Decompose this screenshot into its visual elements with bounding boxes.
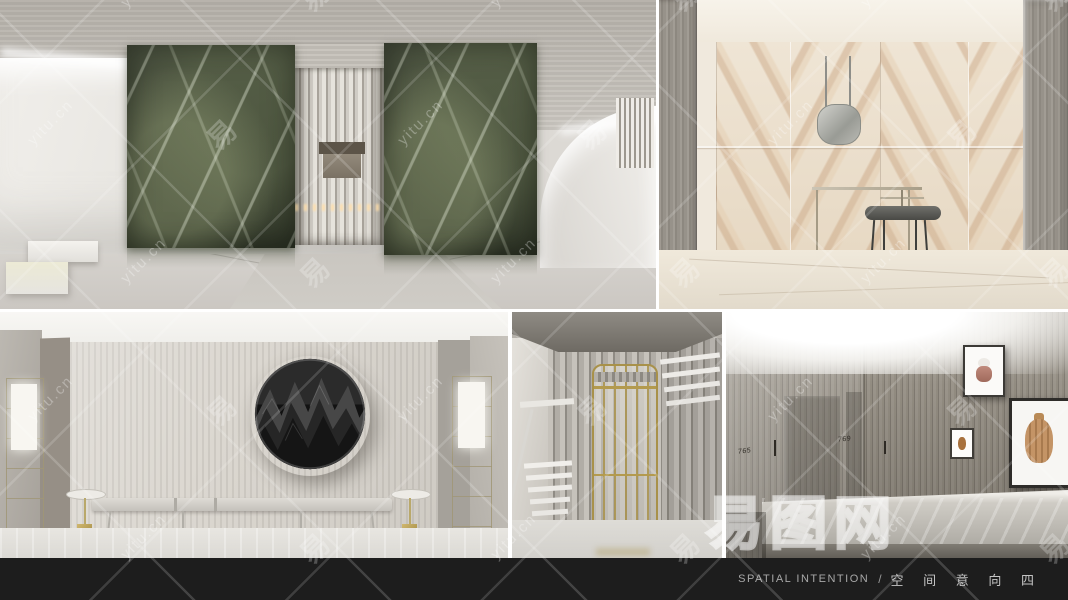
watermark-glyph: 易 — [660, 248, 708, 296]
watermark-glyph: 易 — [197, 386, 245, 434]
watermark-domain-text: yitu.cn — [394, 96, 447, 149]
watermark-glyph: 易 — [1030, 248, 1068, 296]
watermark-domain-text: yitu.cn — [487, 234, 540, 287]
watermark-glyph: 易 — [1030, 0, 1068, 20]
watermark-glyph: 易 — [1030, 524, 1068, 572]
watermark-glyph: 易 — [290, 524, 338, 572]
watermark-domain-text: yitu.cn — [764, 372, 817, 425]
watermark-glyph: 易 — [937, 386, 985, 434]
watermark-glyph: 易 — [567, 386, 615, 434]
watermark-domain-text: yitu.cn — [857, 0, 910, 11]
watermark-glyph: 易 — [567, 110, 615, 158]
watermark-domain-text: yitu.cn — [117, 234, 170, 287]
collage-page: 765 769 SPATIAL INTENTION / 空 间 意 向 四 易图… — [0, 0, 1068, 600]
watermark-domain-text: yitu.cn — [857, 234, 910, 287]
watermark-domain-text: yitu.cn — [117, 0, 170, 11]
watermark-glyph: 易 — [660, 524, 708, 572]
watermark-glyph: 易 — [937, 110, 985, 158]
watermark-domain-text: yitu.cn — [24, 96, 77, 149]
watermark-layer: 易图网 易yitu.cn易yitu.cn易yitu.cn易yitu.cn易yit… — [0, 0, 1068, 600]
watermark-glyph: 易 — [290, 0, 338, 20]
watermark-domain-text: yitu.cn — [117, 510, 170, 563]
watermark-domain-text: yitu.cn — [487, 510, 540, 563]
watermark-domain-text: yitu.cn — [394, 372, 447, 425]
watermark-domain-text: yitu.cn — [24, 372, 77, 425]
watermark-glyph: 易 — [660, 0, 708, 20]
watermark-domain-text: yitu.cn — [487, 0, 540, 11]
watermark-domain-text: yitu.cn — [764, 96, 817, 149]
watermark-glyph: 易 — [290, 248, 338, 296]
watermark-glyph: 易 — [197, 110, 245, 158]
